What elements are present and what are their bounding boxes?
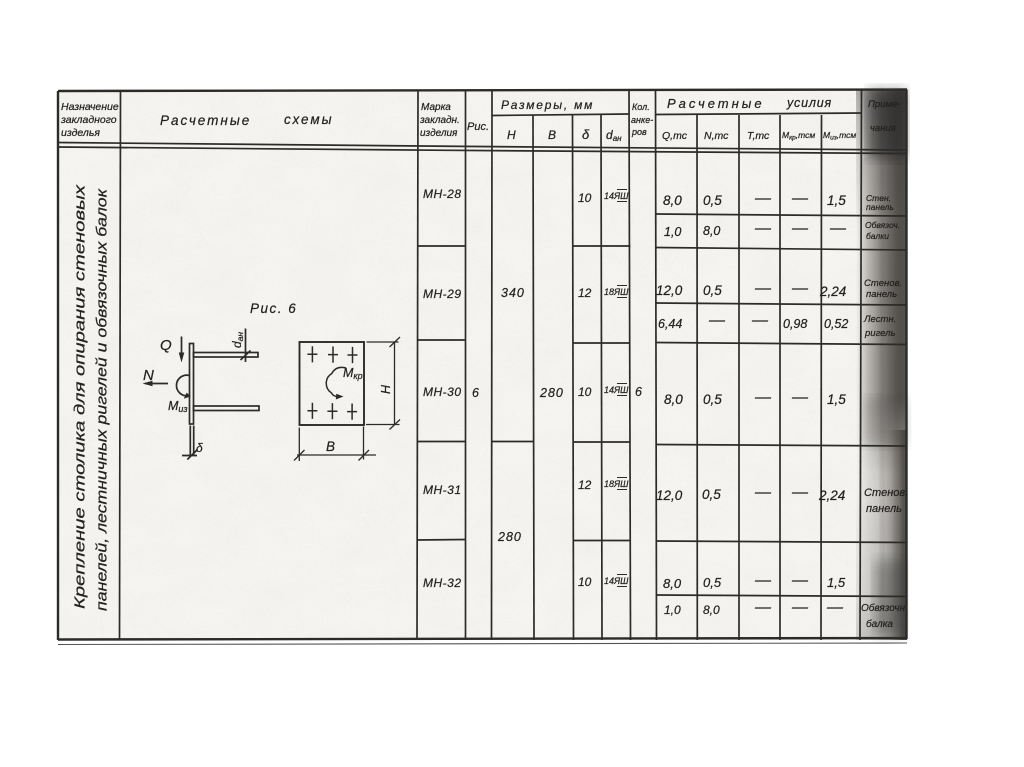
svg-text:10: 10 xyxy=(578,191,592,205)
svg-text:12: 12 xyxy=(578,478,592,492)
svg-text:1,0: 1,0 xyxy=(664,603,681,617)
svg-text:ригель: ригель xyxy=(864,328,895,339)
svg-text:18ЯШ: 18ЯШ xyxy=(604,479,629,489)
svg-text:2,24: 2,24 xyxy=(819,284,846,299)
svg-text:—: — xyxy=(754,484,772,501)
svg-text:340: 340 xyxy=(501,286,525,300)
svg-text:Рис. 6: Рис. 6 xyxy=(250,301,297,316)
svg-text:1,0: 1,0 xyxy=(664,225,681,239)
svg-text:280: 280 xyxy=(539,386,564,400)
svg-text:Q: Q xyxy=(160,337,172,354)
svg-text:Т,тс: Т,тс xyxy=(747,130,770,142)
svg-text:схемы: схемы xyxy=(284,112,334,127)
svg-text:6,44: 6,44 xyxy=(658,317,682,331)
svg-text:Кол.: Кол. xyxy=(632,102,650,112)
svg-text:—: — xyxy=(791,389,809,406)
svg-text:0,52: 0,52 xyxy=(824,317,848,331)
svg-text:—: — xyxy=(754,389,772,406)
svg-text:Стенов.: Стенов. xyxy=(864,278,902,289)
svg-text:18ЯШ: 18ЯШ xyxy=(604,287,629,297)
svg-text:280: 280 xyxy=(497,530,522,544)
svg-text:8,0: 8,0 xyxy=(703,603,720,617)
svg-text:МН-32: МН-32 xyxy=(423,576,462,590)
svg-text:Приме-: Приме- xyxy=(868,99,900,110)
svg-text:МН-29: МН-29 xyxy=(423,287,462,301)
svg-text:панелей, лестничных ригелей и: панелей, лестничных ригелей и обвязочных… xyxy=(94,188,111,611)
svg-text:изделия: изделия xyxy=(420,128,458,139)
svg-text:8,0: 8,0 xyxy=(703,224,720,238)
svg-text:закладн.: закладн. xyxy=(419,115,460,126)
svg-text:Расчетные: Расчетные xyxy=(667,96,765,111)
svg-text:В: В xyxy=(326,439,335,454)
svg-text:14ЯШ: 14ЯШ xyxy=(604,385,629,395)
svg-text:МН-30: МН-30 xyxy=(423,385,462,399)
svg-text:1,5: 1,5 xyxy=(827,193,846,208)
svg-text:Миз,тсм: Миз,тсм xyxy=(823,130,856,142)
svg-text:10: 10 xyxy=(578,575,592,589)
svg-text:—: — xyxy=(754,220,772,237)
svg-text:Марка: Марка xyxy=(421,102,451,113)
svg-text:12,0: 12,0 xyxy=(656,283,683,298)
svg-text:2,24: 2,24 xyxy=(818,488,845,503)
svg-text:8,0: 8,0 xyxy=(663,576,682,591)
svg-text:12: 12 xyxy=(578,286,592,300)
svg-text:—: — xyxy=(791,572,809,589)
svg-text:0,98: 0,98 xyxy=(783,317,807,331)
svg-text:панель: панель xyxy=(866,503,902,515)
svg-text:14ЯШ: 14ЯШ xyxy=(604,576,629,586)
svg-text:Обвязочн: Обвязочн xyxy=(861,602,906,614)
svg-text:чания: чания xyxy=(870,123,896,134)
svg-text:N: N xyxy=(143,367,154,384)
svg-text:8,0: 8,0 xyxy=(663,193,682,208)
svg-text:Q,тс: Q,тс xyxy=(662,130,688,142)
svg-text:В: В xyxy=(548,128,556,142)
svg-text:—: — xyxy=(751,312,769,329)
svg-text:Мкр,тсм: Мкр,тсм xyxy=(782,130,815,142)
svg-text:МН-28: МН-28 xyxy=(423,187,462,201)
svg-text:панель: панель xyxy=(866,289,897,300)
svg-text:—: — xyxy=(791,280,809,297)
svg-text:ров: ров xyxy=(631,127,647,137)
svg-text:Размеры, мм: Размеры, мм xyxy=(501,98,594,112)
svg-text:—: — xyxy=(754,190,772,207)
svg-text:—: — xyxy=(826,599,844,616)
svg-text:усилия: усилия xyxy=(786,96,832,110)
svg-text:0,5: 0,5 xyxy=(703,575,722,590)
svg-text:Назначение: Назначение xyxy=(61,101,119,113)
svg-text:Н: Н xyxy=(507,128,516,142)
svg-text:—: — xyxy=(754,572,772,589)
svg-text:—: — xyxy=(791,220,809,237)
svg-text:Обвязоч.: Обвязоч. xyxy=(865,220,900,230)
svg-text:0,5: 0,5 xyxy=(703,392,722,407)
svg-text:δ: δ xyxy=(582,127,590,142)
svg-text:балка: балка xyxy=(866,618,893,630)
svg-text:0,5: 0,5 xyxy=(703,283,722,298)
svg-text:6: 6 xyxy=(472,386,479,400)
svg-text:Лестн.: Лестн. xyxy=(863,314,896,325)
svg-text:—: — xyxy=(708,312,726,329)
svg-text:изделья: изделья xyxy=(61,127,100,139)
svg-text:1,5: 1,5 xyxy=(827,392,846,407)
svg-text:—: — xyxy=(754,280,772,297)
svg-text:N,тс: N,тс xyxy=(704,130,729,142)
svg-text:анке-: анке- xyxy=(631,115,653,125)
svg-text:Рис.: Рис. xyxy=(467,121,489,133)
svg-text:—: — xyxy=(754,599,772,616)
svg-text:14ЯШ: 14ЯШ xyxy=(604,191,629,201)
svg-text:панель: панель xyxy=(866,202,894,212)
svg-text:—: — xyxy=(791,599,809,616)
svg-text:8,0: 8,0 xyxy=(664,392,683,407)
svg-text:—: — xyxy=(791,190,809,207)
svg-text:Крепление столика для опира: Крепление столика для опирания стеновых xyxy=(72,184,89,609)
svg-text:закладного: закладного xyxy=(60,114,117,126)
svg-text:балки: балки xyxy=(866,231,889,241)
svg-text:6: 6 xyxy=(635,385,642,399)
svg-text:δ: δ xyxy=(196,441,203,455)
svg-text:Расчетные: Расчетные xyxy=(160,113,251,128)
svg-text:10: 10 xyxy=(578,385,592,399)
svg-text:12,0: 12,0 xyxy=(656,488,683,503)
svg-text:Н: Н xyxy=(379,384,393,394)
svg-text:0,5: 0,5 xyxy=(703,193,722,208)
svg-text:МН-31: МН-31 xyxy=(423,483,462,497)
svg-text:Стенов.: Стенов. xyxy=(864,487,908,499)
svg-text:0,5: 0,5 xyxy=(702,487,721,502)
svg-text:—: — xyxy=(791,484,809,501)
svg-text:1,5: 1,5 xyxy=(827,575,846,590)
svg-text:—: — xyxy=(829,220,847,237)
